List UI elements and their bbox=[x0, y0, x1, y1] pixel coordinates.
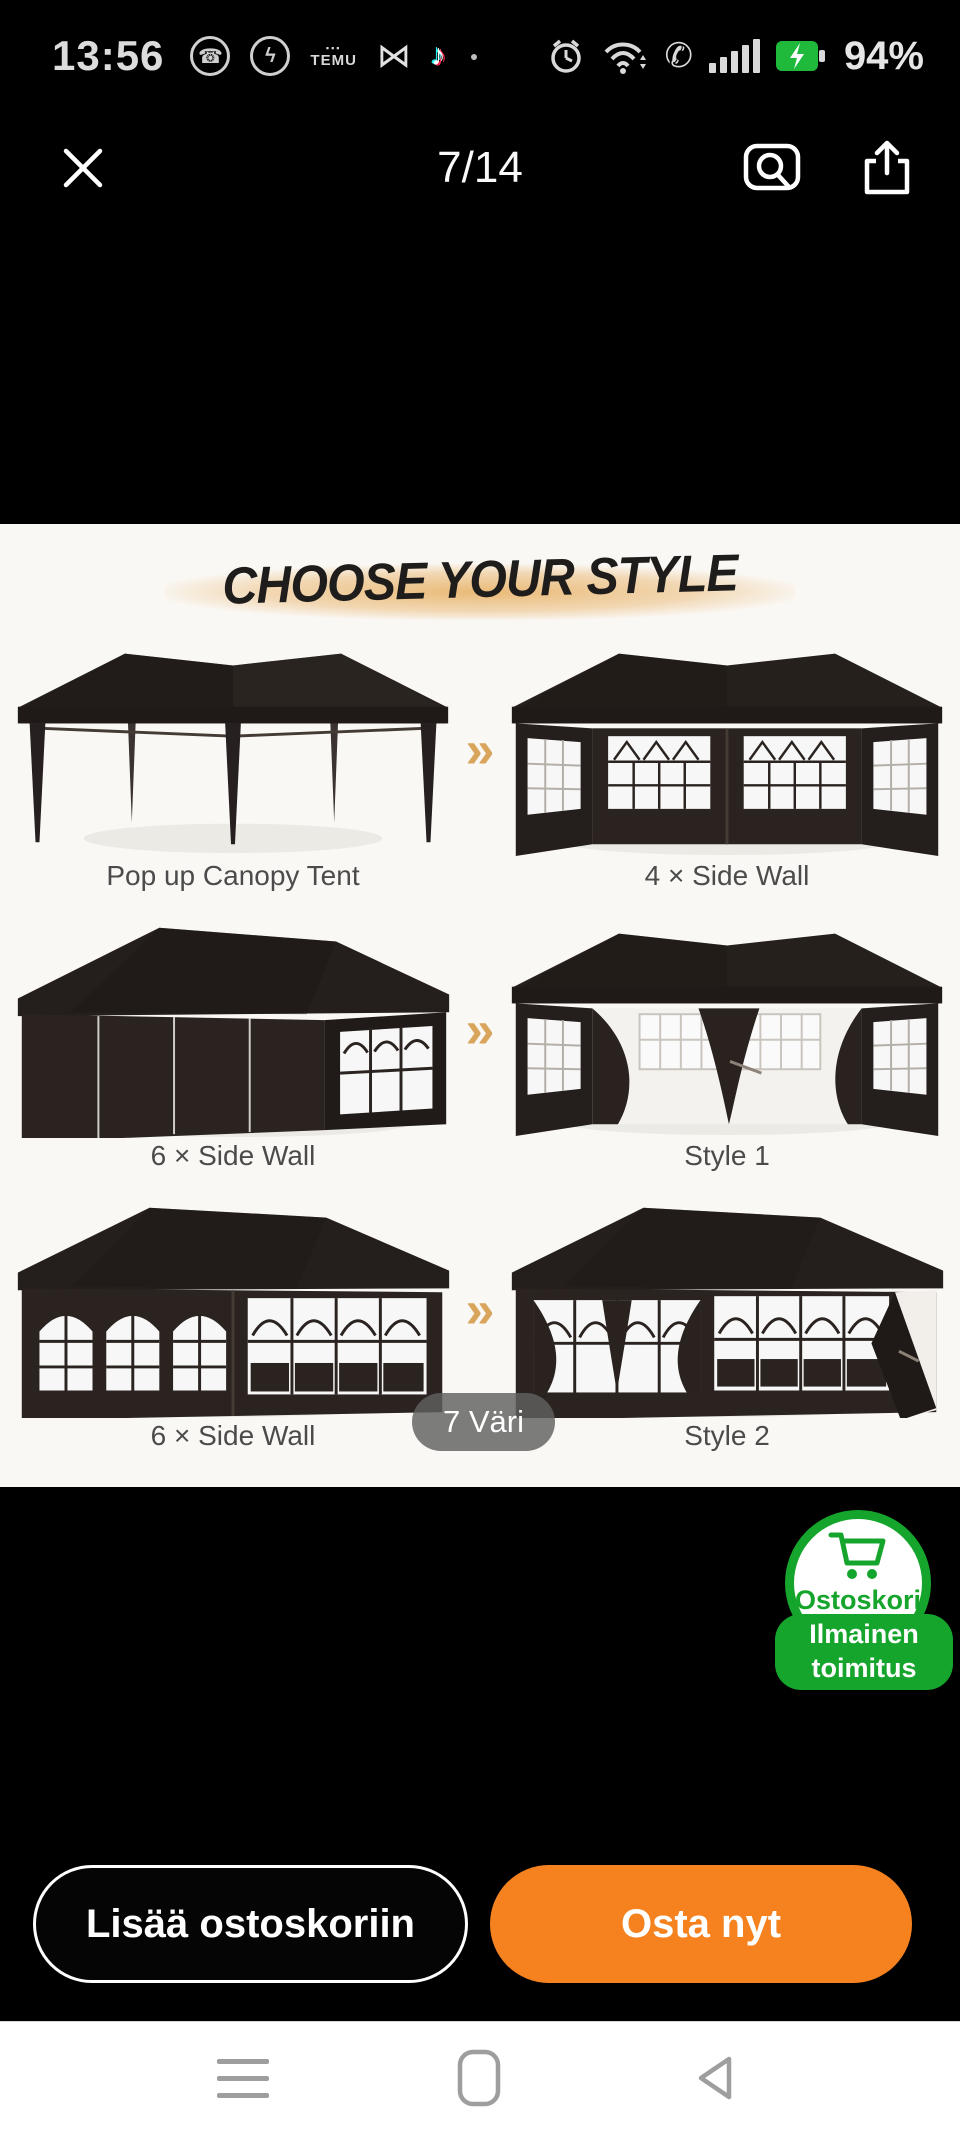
notification-dot-icon: ● bbox=[470, 48, 478, 64]
add-to-cart-button[interactable]: Lisää ostoskoriin bbox=[33, 1865, 468, 1983]
tent-style-2-illustration bbox=[502, 1194, 952, 1418]
status-bar: 13:56 ☎ ϟ ▪▪▪ TEMU ⋈ ♪ ● bbox=[0, 18, 960, 94]
messenger-icon: ϟ bbox=[250, 36, 290, 76]
wifi-icon bbox=[602, 36, 648, 76]
recents-button[interactable] bbox=[195, 2022, 291, 2133]
battery-percent: 94% bbox=[844, 34, 924, 79]
cart-free-shipping-badge[interactable]: Ostoskori Ilmainen toimitus bbox=[775, 1510, 953, 1690]
style-label: Style 2 bbox=[502, 1420, 952, 1452]
temu-icon: ▪▪▪ TEMU bbox=[310, 44, 357, 68]
style-label: 6 × Side Wall bbox=[8, 1420, 458, 1452]
style-option-6-side-wall-closed: 6 × Side Wall bbox=[8, 914, 458, 1172]
notification-icons: ☎ ϟ ▪▪▪ TEMU ⋈ ♪ ● bbox=[190, 36, 478, 76]
phone-screen: 13:56 ☎ ϟ ▪▪▪ TEMU ⋈ ♪ ● bbox=[0, 0, 960, 2133]
tent-pop-up-illustration bbox=[8, 634, 458, 858]
menu-icon bbox=[217, 2059, 269, 2098]
clock-time: 13:56 bbox=[52, 32, 164, 80]
tent-style-1-illustration bbox=[502, 914, 952, 1138]
gallery-header: 7/14 bbox=[0, 120, 960, 216]
style-label: Style 1 bbox=[502, 1140, 952, 1172]
style-option-6-side-wall-windows: 6 × Side Wall bbox=[8, 1194, 458, 1452]
style-option-pop-up-canopy: Pop up Canopy Tent bbox=[8, 634, 458, 892]
cart-badge-title: Ostoskori bbox=[795, 1585, 921, 1616]
whatsapp-icon: ☎ bbox=[190, 36, 230, 76]
image-search-icon bbox=[742, 139, 804, 197]
home-button[interactable] bbox=[431, 2022, 527, 2133]
battery-charging-icon bbox=[776, 39, 828, 73]
style-label: 4 × Side Wall bbox=[502, 860, 952, 892]
home-icon bbox=[457, 2049, 501, 2107]
alarm-clock-icon bbox=[546, 36, 586, 76]
color-variant-badge[interactable]: 7 Väri bbox=[412, 1393, 555, 1451]
free-shipping-banner: Ilmainen toimitus bbox=[775, 1614, 953, 1690]
style-option-style-1: Style 1 bbox=[502, 914, 952, 1172]
image-search-button[interactable] bbox=[738, 133, 808, 203]
temu-icon-label: TEMU bbox=[310, 53, 357, 68]
capcut-icon: ⋈ bbox=[377, 36, 411, 76]
style-row-1: Pop up Canopy Tent » bbox=[0, 634, 960, 896]
style-option-style-2: Style 2 bbox=[502, 1194, 952, 1452]
style-label: Pop up Canopy Tent bbox=[8, 860, 458, 892]
tent-4-wall-illustration bbox=[502, 634, 952, 858]
share-icon bbox=[862, 139, 912, 197]
back-icon bbox=[691, 2053, 737, 2103]
buy-now-button[interactable]: Osta nyt bbox=[490, 1865, 912, 1983]
free-shipping-line2: toimitus bbox=[812, 1652, 917, 1686]
free-shipping-line1: Ilmainen bbox=[809, 1618, 919, 1652]
tent-6-wall-windows-illustration bbox=[8, 1194, 458, 1418]
style-label: 6 × Side Wall bbox=[8, 1140, 458, 1172]
shopping-cart-icon bbox=[827, 1529, 889, 1583]
system-status-icons: ✆ 94% bbox=[546, 34, 924, 79]
product-photo[interactable]: CHOOSE YOUR STYLE Pop up Canopy Ten bbox=[0, 524, 960, 1487]
tiktok-icon: ♪ bbox=[431, 39, 446, 73]
signal-strength-icon bbox=[709, 39, 760, 73]
style-option-4-side-wall: 4 × Side Wall bbox=[502, 634, 952, 892]
tent-6-wall-closed-illustration bbox=[8, 914, 458, 1138]
share-button[interactable] bbox=[852, 133, 922, 203]
wifi-calling-icon: ✆ bbox=[664, 36, 693, 76]
back-button[interactable] bbox=[666, 2022, 762, 2133]
android-navigation-bar bbox=[0, 2021, 960, 2133]
style-row-2: 6 × Side Wall » bbox=[0, 914, 960, 1176]
